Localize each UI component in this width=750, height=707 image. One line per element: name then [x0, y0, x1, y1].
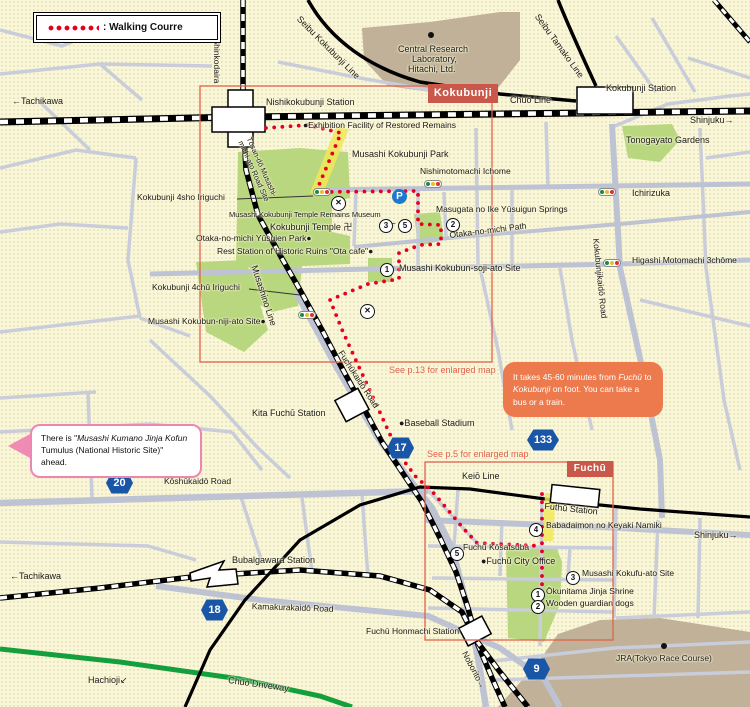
parking-icon: P — [392, 189, 407, 204]
label-nishimotomachi-ichome: Nishimotomachi Ichome — [420, 167, 511, 177]
poi-dot — [428, 32, 434, 38]
numbered-marker-2: 2 — [531, 600, 545, 614]
label-wooden-guardian-dogs: Wooden guardian dogs — [546, 599, 634, 609]
label-kokubun-soji-ato: Musashi Kokubun-soji-ato Site — [399, 263, 521, 273]
label-hachioji: Hachioji↙ — [88, 675, 128, 685]
label-fuchu-kosatsuba: Fuchū Kōsatsuba — [463, 543, 529, 553]
traffic-light-icon — [598, 188, 616, 196]
label-kokubunji-4sho-iriguchi: Kokubunji 4sho Iriguchi — [137, 193, 225, 203]
label-kokubunji-temple: Kokubunji Temple 卍 — [270, 222, 352, 232]
label-okunitama-shrine: Ōkunitama Jinja Shrine — [546, 587, 634, 597]
label-central-lab-1: Central Research — [398, 44, 468, 54]
label-ichirizuka: Ichirizuka — [632, 188, 670, 198]
traffic-light-icon — [424, 180, 442, 188]
kofun-arrow-icon — [8, 434, 30, 458]
label-fuchu-honmachi-station: Fuchū Honmachi Station — [366, 627, 459, 637]
numbered-marker-2: 2 — [446, 218, 460, 232]
label-higashi-motomachi: Higashi Motomachi 3chōme — [632, 256, 737, 266]
kofun-callout: There is "Musashi Kumano Jinja Kofun Tum… — [30, 424, 202, 478]
traffic-light-lamp — [426, 182, 430, 186]
label-temple-remains-museum: Musashi Kokubunji Temple Remains Museum — [229, 211, 381, 220]
traffic-light-lamp — [436, 182, 440, 186]
traffic-light-lamp — [600, 190, 604, 194]
poi-dot — [661, 643, 667, 649]
region-tag-fuchu: Fuchū — [567, 461, 613, 477]
label-nishikokubunji-station: Nishikokubunji Station — [266, 97, 355, 107]
police-box-icon: ✕ — [360, 304, 375, 319]
route-dots-sample-icon — [47, 25, 99, 31]
label-see-p5: See p.5 for enlarged map — [427, 449, 529, 459]
traffic-light-lamp — [605, 261, 609, 265]
numbered-marker-3: 3 — [379, 219, 393, 233]
legend-walking-course: : Walking Courre — [36, 15, 218, 40]
label-central-lab-3: Hitachi, Ltd. — [408, 64, 456, 74]
traffic-light-icon — [298, 311, 316, 319]
traffic-light-lamp — [315, 190, 319, 194]
label-see-p13: See p.13 for enlarged map — [389, 365, 496, 375]
traffic-light-icon — [313, 188, 331, 196]
traffic-light-lamp — [325, 190, 329, 194]
label-musashi-kokubunji-park: Musashi Kokubunji Park — [352, 149, 449, 159]
label-kokubun-niji-ato: Musashi Kokubun-niji-ato Site● — [148, 317, 266, 327]
numbered-marker-5: 5 — [398, 219, 412, 233]
numbered-marker-4: 4 — [529, 523, 543, 537]
label-musashi-kokufu-ato: Musashi Kokufu-ato Site — [582, 569, 674, 579]
label-masugata-springs: Masugata no Ike Yūsuigun Springs — [436, 205, 568, 215]
chuo-driveway-line — [0, 649, 352, 707]
label-chuo-line: Chūō Line — [510, 95, 551, 105]
label-exhibition-facility: ●Exhibition Facility of Restored Remains — [303, 121, 456, 131]
traffic-light-lamp — [310, 313, 314, 317]
traffic-light-lamp — [605, 190, 609, 194]
walking-course-map: : Walking Courre Kokubunji Fuchū It take… — [0, 0, 750, 707]
label-kokubunji-station: Kokubunji Station — [606, 83, 676, 93]
kofun-text-post: Tumulus (National Historic Site)" ahead. — [41, 445, 163, 467]
label-babadaimon-keyaki: Babadaimon no Keyaki Namiki — [546, 521, 662, 531]
traffic-light-lamp — [610, 190, 614, 194]
label-koshukaido-road: Kōshūkaidō Road — [164, 477, 231, 487]
region-tag-kokubunji: Kokubunji — [428, 84, 498, 103]
duration-text-fuchu: Fuchū — [618, 372, 642, 382]
traffic-light-lamp — [305, 313, 309, 317]
numbered-marker-3: 3 — [566, 571, 580, 585]
legend-label: : Walking Courre — [103, 22, 183, 33]
duration-callout: It takes 45-60 minutes from Fuchū to Kok… — [503, 362, 663, 417]
traffic-light-lamp — [615, 261, 619, 265]
map-geometry — [0, 0, 750, 707]
label-central-lab-2: Laboratory, — [412, 54, 457, 64]
numbered-marker-5: 5 — [450, 547, 464, 561]
label-shinjuku-fuchu: Shinjuku→ — [694, 530, 738, 540]
label-jra: JRA(Tokyo Race Course) — [616, 654, 712, 664]
traffic-light-lamp — [431, 182, 435, 186]
label-kita-fuchu-station: Kita Fuchū Station — [252, 408, 326, 418]
kofun-text-name: Musashi Kumano Jinja Kofun — [77, 433, 187, 443]
traffic-light-lamp — [300, 313, 304, 317]
traffic-light-lamp — [320, 190, 324, 194]
label-fuchu-city-office: ●Fuchū City Office — [481, 556, 555, 566]
traffic-light-icon — [603, 259, 621, 267]
bubaigawara-station-shape — [190, 561, 238, 587]
label-ota-cafe: Rest Station of Historic Ruins "Ota cafe… — [217, 247, 373, 257]
kofun-text-pre: There is " — [41, 433, 77, 443]
label-baseball-stadium: ●Baseball Stadium — [399, 418, 474, 428]
duration-text-pre: It takes 45-60 minutes from — [513, 372, 618, 382]
police-box-icon: ✕ — [331, 196, 346, 211]
label-kokubunji-4chu-iriguchi: Kokubunji 4chū Iriguchi — [152, 283, 240, 293]
label-tachikawa-top: ←Tachikawa — [12, 96, 63, 106]
traffic-light-lamp — [610, 261, 614, 265]
duration-text-kokubunji: Kokubunji — [513, 384, 550, 394]
label-tonogayato-gardens: Tonogayato Gardens — [626, 135, 710, 145]
numbered-marker-1: 1 — [380, 263, 394, 277]
duration-text-mid: to — [642, 372, 651, 382]
label-yusuien-park: Otaka-no-michi Yūsuien Park● — [196, 234, 312, 244]
label-keio-line: Keiō Line — [462, 471, 500, 481]
label-shinjuku-top: Shinjuku→ — [690, 115, 734, 125]
label-bubaigawara-station: Bubalgawara Station — [232, 555, 315, 565]
label-tachikawa-mid: ←Tachikawa — [10, 571, 61, 581]
